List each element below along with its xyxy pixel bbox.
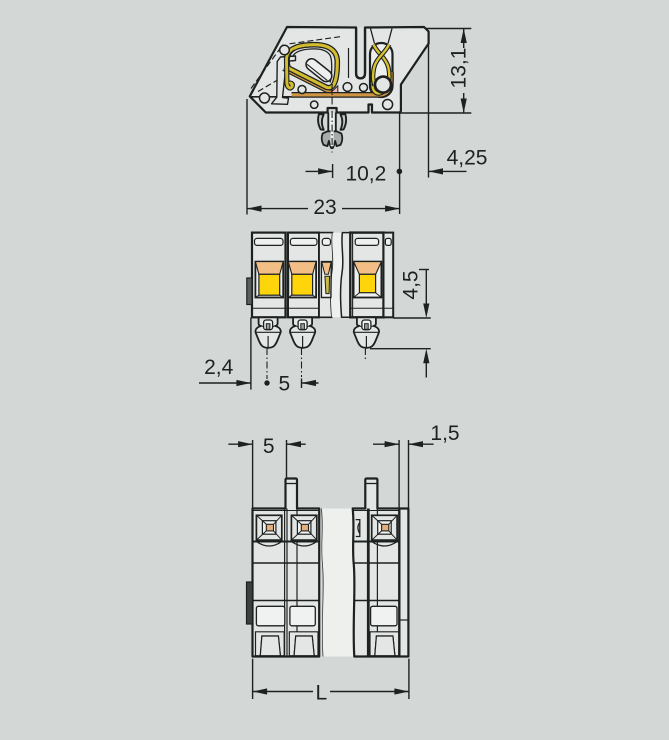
svg-text:5: 5 [263,435,275,458]
svg-text:L: L [316,682,328,705]
svg-text:10,2: 10,2 [345,162,386,185]
svg-text:5: 5 [278,373,290,396]
svg-text:4,25: 4,25 [447,146,488,169]
svg-text:1,5: 1,5 [430,422,459,445]
svg-text:2,4: 2,4 [204,356,234,379]
svg-text:4,5: 4,5 [400,270,423,299]
svg-text:13,1: 13,1 [448,48,471,89]
svg-text:23: 23 [313,196,336,219]
